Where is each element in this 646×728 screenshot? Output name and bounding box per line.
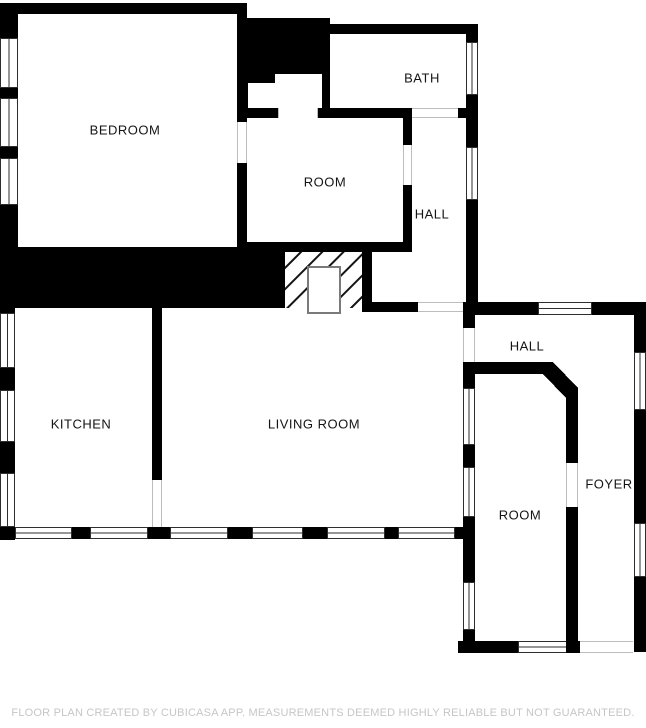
living-room-label: LIVING ROOM — [268, 417, 360, 432]
bedroom-label: BEDROOM — [90, 123, 161, 138]
room-upper-label: ROOM — [304, 175, 346, 190]
footer-disclaimer: FLOOR PLAN CREATED BY CUBICASA APP. MEAS… — [0, 707, 646, 719]
bedroom-left-windows — [1, 38, 18, 205]
kitchen-label: KITCHEN — [51, 417, 112, 432]
staircase — [285, 242, 418, 313]
foyer-label: FOYER — [585, 477, 632, 492]
structural-wall-band — [0, 247, 285, 308]
living-right-windows — [464, 388, 475, 630]
bath-bottom-wall — [237, 108, 468, 118]
kitchen-left-windows — [1, 313, 15, 527]
hall-lower-label: HALL — [510, 339, 545, 354]
floor-plan: BEDROOM BATH ROOM HALL KITCHEN LIVING RO… — [0, 0, 646, 728]
hall-upper-label: HALL — [415, 207, 450, 222]
stair-landing — [308, 267, 340, 313]
bath-label: BATH — [404, 71, 440, 86]
chimney-mass — [245, 18, 330, 118]
floor-plan-drawing — [0, 0, 646, 728]
room-lower-label: ROOM — [499, 508, 541, 523]
